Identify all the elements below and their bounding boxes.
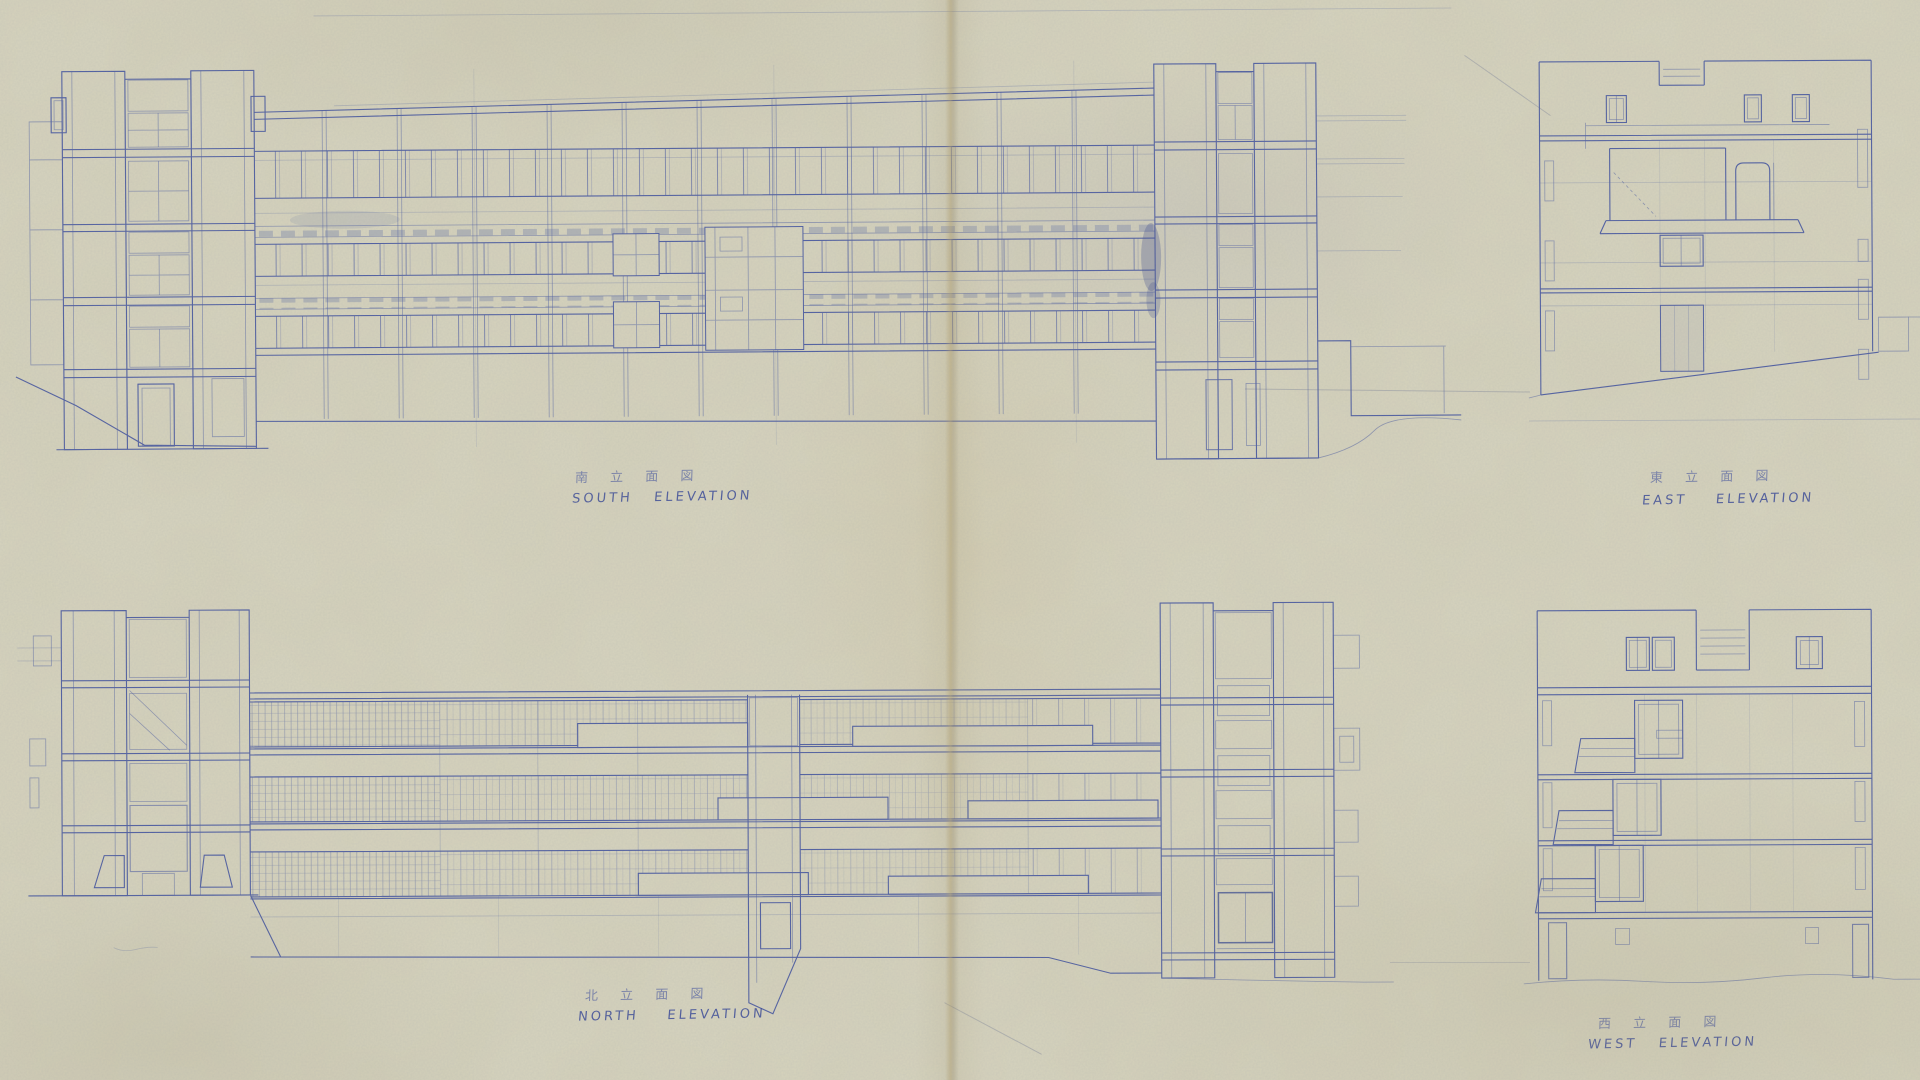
north-elevation-drawing bbox=[17, 580, 1394, 1026]
west-elevation-drawing bbox=[1522, 581, 1920, 1028]
ground-datum-line-2 bbox=[1390, 962, 1530, 963]
east-elevation-drawing bbox=[1527, 21, 1920, 435]
west-elevation-caption-ja: 西 立 面 図 bbox=[1598, 1011, 1726, 1032]
east-elevation-caption-en: EAST ELEVATION bbox=[1641, 490, 1814, 508]
south-elevation-drawing bbox=[13, 0, 1461, 485]
north-elevation-caption-ja: 北 立 面 図 bbox=[585, 983, 713, 1004]
blueprint-sheet: 南 立 面 図 SOUTH ELEVATION 東 立 面 図 EAST ELE… bbox=[0, 0, 1920, 1080]
south-elevation-caption-ja: 南 立 面 図 bbox=[575, 465, 703, 486]
south-elevation-caption-en: SOUTH ELEVATION bbox=[571, 488, 753, 506]
east-elevation-caption-ja: 東 立 面 図 bbox=[1650, 465, 1778, 486]
west-elevation-caption-en: WEST ELEVATION bbox=[1587, 1035, 1757, 1053]
